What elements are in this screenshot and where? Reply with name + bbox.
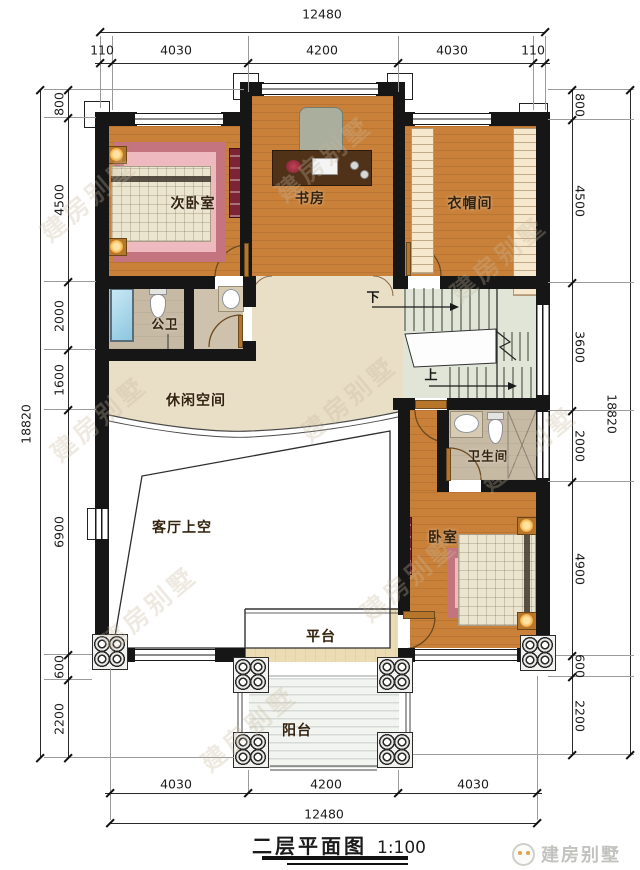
window (536, 412, 550, 478)
dim-label: 6900 (52, 516, 67, 548)
nightstand-lamp (517, 517, 537, 535)
wall (481, 480, 550, 492)
room-label-bedroom: 卧室 (428, 527, 458, 547)
ext-line (545, 36, 546, 110)
dim-label: 3600 (573, 331, 588, 363)
window (415, 649, 517, 661)
wall (447, 398, 550, 410)
door-leaf (244, 243, 249, 277)
room-label-living-void: 客厅上空 (152, 517, 212, 537)
wall (95, 276, 215, 289)
ext-line (44, 89, 244, 90)
dim-label: 600 (573, 654, 588, 678)
bed-fold (111, 176, 211, 182)
ext-line (548, 676, 634, 677)
window (262, 83, 378, 95)
ext-line (548, 89, 634, 90)
column (233, 657, 269, 693)
room-label-platform: 平台 (306, 626, 336, 646)
dim-label: 2000 (573, 430, 588, 462)
window (95, 509, 109, 539)
dim-label: 4500 (573, 185, 588, 217)
title-underline-thin (287, 863, 408, 865)
desk-item (350, 161, 359, 170)
dim-label: 1600 (52, 364, 67, 396)
room-label-balcony: 阳台 (282, 720, 312, 740)
door-leaf (415, 400, 447, 409)
dim-label: 12480 (302, 7, 342, 22)
drawing-title: 二层平面图 1:100 (252, 830, 426, 859)
ext-line (548, 410, 634, 411)
dim-line (68, 90, 69, 758)
room-label-leisure: 休闲空间 (166, 390, 226, 410)
ext-line (413, 754, 634, 755)
dim-label: 110 (90, 43, 114, 58)
floorplan-canvas: 次卧室 书房 衣帽间 公卫 休闲空间 客厅上空 卫生间 卧室 平台 阳台 下 上 (0, 0, 640, 870)
dim-label: 4030 (457, 777, 489, 792)
wall (376, 82, 405, 96)
dim-label: 2000 (52, 300, 67, 332)
column (377, 732, 413, 768)
wall (393, 96, 405, 276)
brand-logo-icon (512, 843, 535, 866)
ext-line (556, 655, 634, 656)
window (413, 113, 491, 125)
dim-line (100, 32, 545, 33)
wall (243, 276, 256, 307)
dim-label: 2200 (52, 703, 67, 735)
dim-label: 4200 (310, 777, 342, 792)
dim-line (105, 793, 542, 794)
dim-label: 4200 (306, 43, 338, 58)
ext-line (44, 757, 234, 758)
dim-line (110, 823, 537, 824)
ext-line (110, 668, 111, 820)
closet-shelf (411, 128, 434, 274)
room-label-cloakroom: 衣帽间 (448, 193, 493, 213)
sink (454, 414, 479, 433)
sink (222, 289, 240, 309)
ext-line (548, 119, 634, 120)
wall (393, 276, 408, 289)
wall (393, 398, 415, 410)
shower (110, 288, 134, 342)
wall (95, 349, 256, 361)
dim-label: 4030 (160, 43, 192, 58)
dim-label: 18820 (19, 404, 34, 444)
ext-line (548, 282, 634, 283)
desk-item (360, 170, 369, 179)
door-leaf (403, 611, 435, 619)
window (536, 305, 550, 395)
dim-label: 18820 (605, 394, 620, 434)
wall (437, 480, 449, 492)
dim-label: 4900 (573, 553, 588, 585)
nightstand-lamp (517, 612, 537, 630)
dim-label: 4500 (52, 184, 67, 216)
dim-label: 110 (521, 43, 545, 58)
stair-up-label: 上 (424, 365, 437, 384)
ext-line (537, 676, 538, 820)
dim-line (95, 63, 550, 64)
wall (95, 112, 109, 509)
door-leaf (238, 315, 243, 348)
room-label-bathroom: 卫生间 (468, 446, 509, 465)
column (520, 635, 556, 671)
column (377, 657, 413, 693)
dim-label: 4030 (160, 777, 192, 792)
drawing-title-text: 二层平面图 (252, 830, 367, 859)
dim-label: 4030 (436, 43, 468, 58)
brand-logo-text: 建房别墅 (541, 841, 621, 867)
wall (440, 276, 550, 289)
desk-books (312, 158, 338, 175)
window (135, 649, 215, 661)
wall (398, 410, 410, 615)
room-label-study: 书房 (295, 188, 325, 208)
title-underline (262, 856, 408, 860)
column (233, 732, 269, 768)
ext-line (548, 481, 634, 482)
room-label-public-bath: 公卫 (151, 314, 178, 333)
column (92, 634, 128, 670)
desk-flower (286, 160, 301, 173)
brand-logo: 建房别墅 (512, 841, 621, 867)
nightstand-lamp (107, 146, 127, 164)
window (135, 113, 223, 125)
nightstand-lamp (107, 238, 127, 256)
stair-down-label: 下 (366, 287, 379, 306)
wall (184, 289, 194, 349)
dim-label: 600 (52, 655, 67, 679)
dim-label: 800 (573, 93, 588, 117)
dim-label: 2200 (573, 700, 588, 732)
dim-line (40, 90, 41, 758)
door-leaf (406, 242, 411, 276)
door-leaf (446, 448, 451, 481)
dim-label: 800 (52, 92, 67, 116)
drawing-scale: 1:100 (377, 838, 426, 858)
room-label-secondary-bedroom: 次卧室 (171, 193, 216, 213)
dim-label: 12480 (304, 807, 344, 822)
